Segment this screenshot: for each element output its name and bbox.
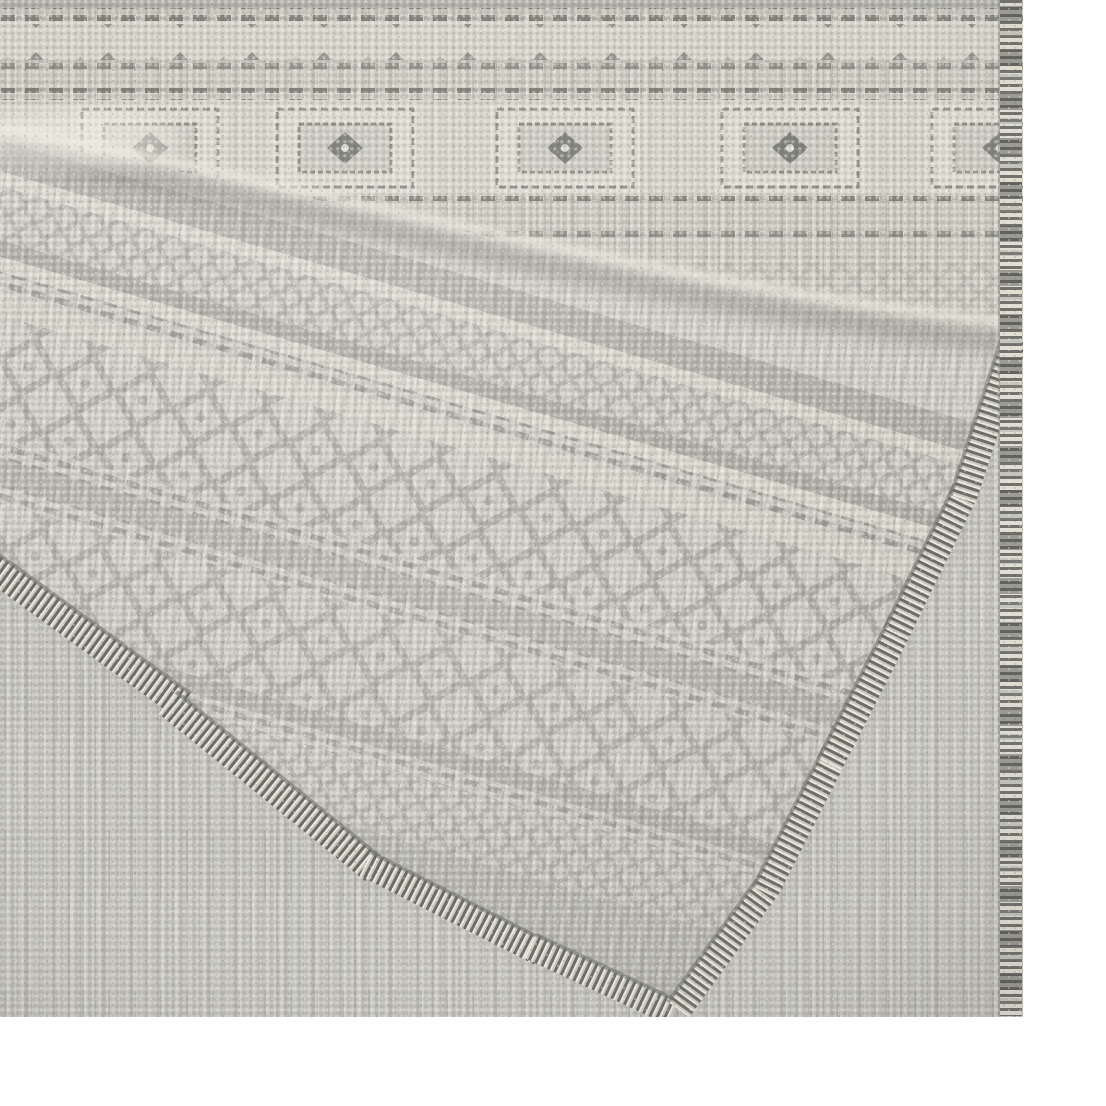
photo-vignette <box>0 0 1023 1017</box>
photo-area <box>0 0 1106 1106</box>
rug-product-photo <box>0 0 1106 1106</box>
rug-photo-svg <box>0 0 1106 1106</box>
